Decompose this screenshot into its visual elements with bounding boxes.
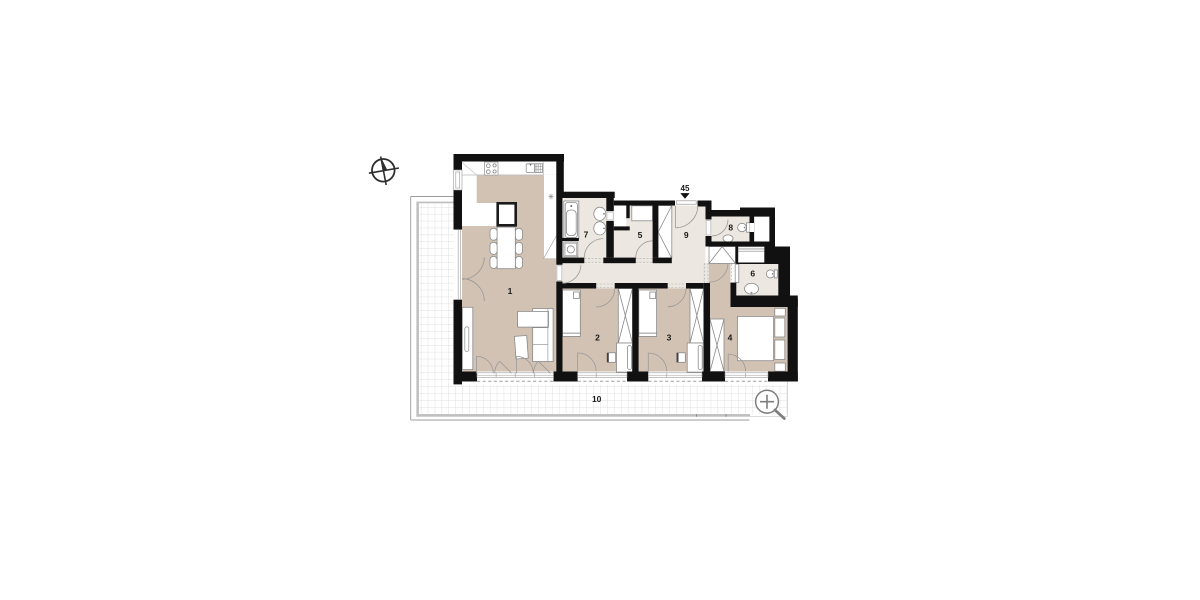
svg-text:6: 6	[750, 268, 755, 278]
svg-text:7: 7	[584, 230, 589, 240]
svg-text:4: 4	[728, 333, 733, 343]
svg-text:8: 8	[728, 223, 733, 233]
svg-text:1: 1	[508, 286, 513, 296]
svg-text:45: 45	[681, 184, 690, 193]
svg-text:5: 5	[638, 230, 643, 240]
svg-text:9: 9	[684, 230, 689, 240]
svg-text:2: 2	[595, 333, 600, 343]
svg-text:3: 3	[667, 333, 672, 343]
svg-text:10: 10	[592, 394, 602, 404]
